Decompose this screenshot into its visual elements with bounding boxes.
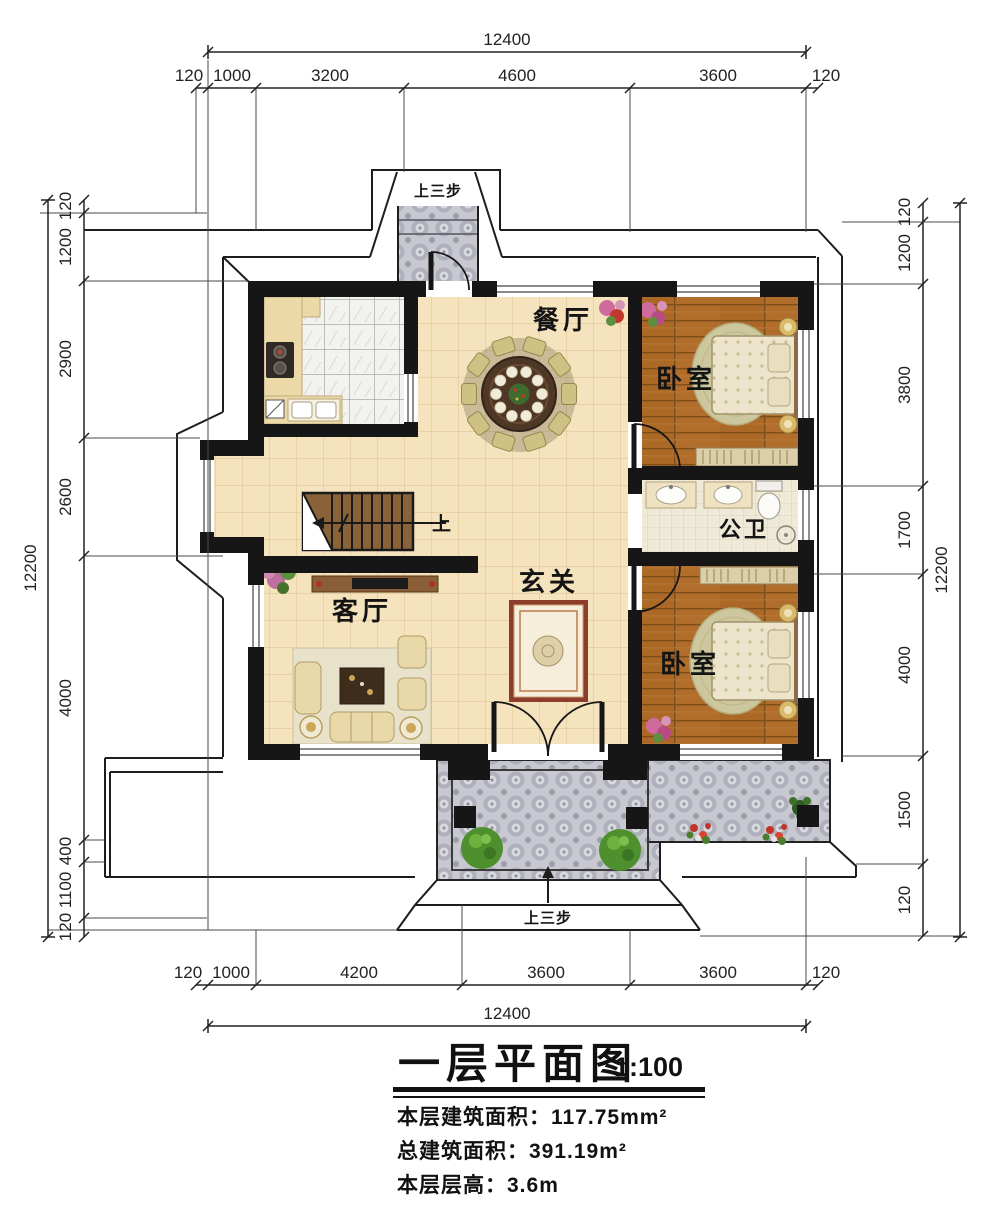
dim-bottom-3: 3600 [527,963,565,982]
foyer-rug [509,600,588,702]
dim-left-5: 400 [56,837,75,865]
dim-left-3: 2600 [56,478,75,516]
dim-left-4: 4000 [56,679,75,717]
dim-right-3: 1700 [895,511,914,549]
window [497,281,593,297]
label-bedroom-top: 卧室 [656,364,716,394]
dim-left-1: 1200 [56,228,75,266]
dim-bottom-5: 120 [812,963,840,982]
dim-top-2: 3200 [311,66,349,85]
window [200,460,214,532]
dim-overall-height-right: 12200 [932,546,951,593]
column [626,807,648,829]
window [798,612,814,698]
label-foyer: 玄关 [519,567,579,597]
stat-floor-height: 本层层高：3.6m [397,1173,559,1197]
label-steps-top: 上三步 [414,183,462,200]
wardrobe [696,448,798,466]
bay-floor [214,456,264,537]
dim-bottom-0: 120 [174,963,202,982]
dim-overall-width-top: 12400 [483,30,530,49]
porch-pier [448,760,490,780]
drawing-scale: 1:100 [614,1052,683,1082]
dim-overall-height-left: 12200 [21,544,40,591]
label-dining: 餐厅 [533,305,593,335]
dim-bottom-1: 1000 [212,963,250,982]
stat-total-area: 总建筑面积：391.19m² [397,1139,627,1163]
column [454,806,476,828]
dim-left-0: 120 [56,192,75,220]
dim-bottom-2: 4200 [340,963,378,982]
armchair [398,636,426,668]
title-underline-thin [393,1096,705,1098]
floor-plan-page: 12400 120 1000 3200 4600 3600 120 120 10… [0,0,1000,1208]
label-living: 客厅 [332,596,392,626]
dim-top-3: 4600 [498,66,536,85]
stat-floor-area: 本层建筑面积：117.75mm² [397,1105,667,1129]
floor-plan-drawing: 12400 120 1000 3200 4600 3600 120 120 10… [0,0,1000,1208]
window [248,585,264,647]
dim-left-7: 120 [56,913,75,941]
bathroom-opening [628,494,642,548]
label-steps-bottom: 上三步 [524,910,572,927]
dim-overall-width-bottom: 12400 [483,1004,530,1023]
drawing-title: 一层平面图 [398,1040,638,1087]
dim-bottom-4: 3600 [699,963,737,982]
porch-pier [603,760,647,780]
dim-left-6: 1100 [56,872,75,909]
chaise [295,662,321,714]
title-block: 一层平面图 1:100 本层建筑面积：117.75mm² 总建筑面积：391.1… [393,1040,705,1197]
dim-right-6: 120 [895,886,914,914]
label-bathroom: 公卫 [719,517,769,542]
dim-right-4: 4000 [895,646,914,684]
dim-left-2: 2900 [56,340,75,378]
dim-top-1: 1000 [213,66,251,85]
dim-top-0: 120 [175,66,203,85]
sofa [330,712,394,742]
window [677,281,760,297]
dining-table-set [462,336,577,452]
window [798,490,814,540]
dim-top-4: 3600 [699,66,737,85]
dim-right-2: 3800 [895,366,914,404]
window [680,744,782,760]
column [797,805,819,827]
window [300,744,420,760]
window [798,330,814,418]
tv [352,578,408,589]
dim-right-0: 120 [895,198,914,226]
dim-right-1: 1200 [895,234,914,272]
title-underline-thick [393,1087,705,1092]
dim-top-5: 120 [812,66,840,85]
label-bedroom-bottom: 卧室 [660,649,720,679]
wardrobe [700,567,800,584]
dim-right-5: 1500 [895,791,914,829]
porch-steps [398,206,478,281]
armchair [398,678,426,710]
pass-through [404,374,418,422]
label-stairs-up: 上 [432,513,452,535]
toilet [756,481,782,491]
